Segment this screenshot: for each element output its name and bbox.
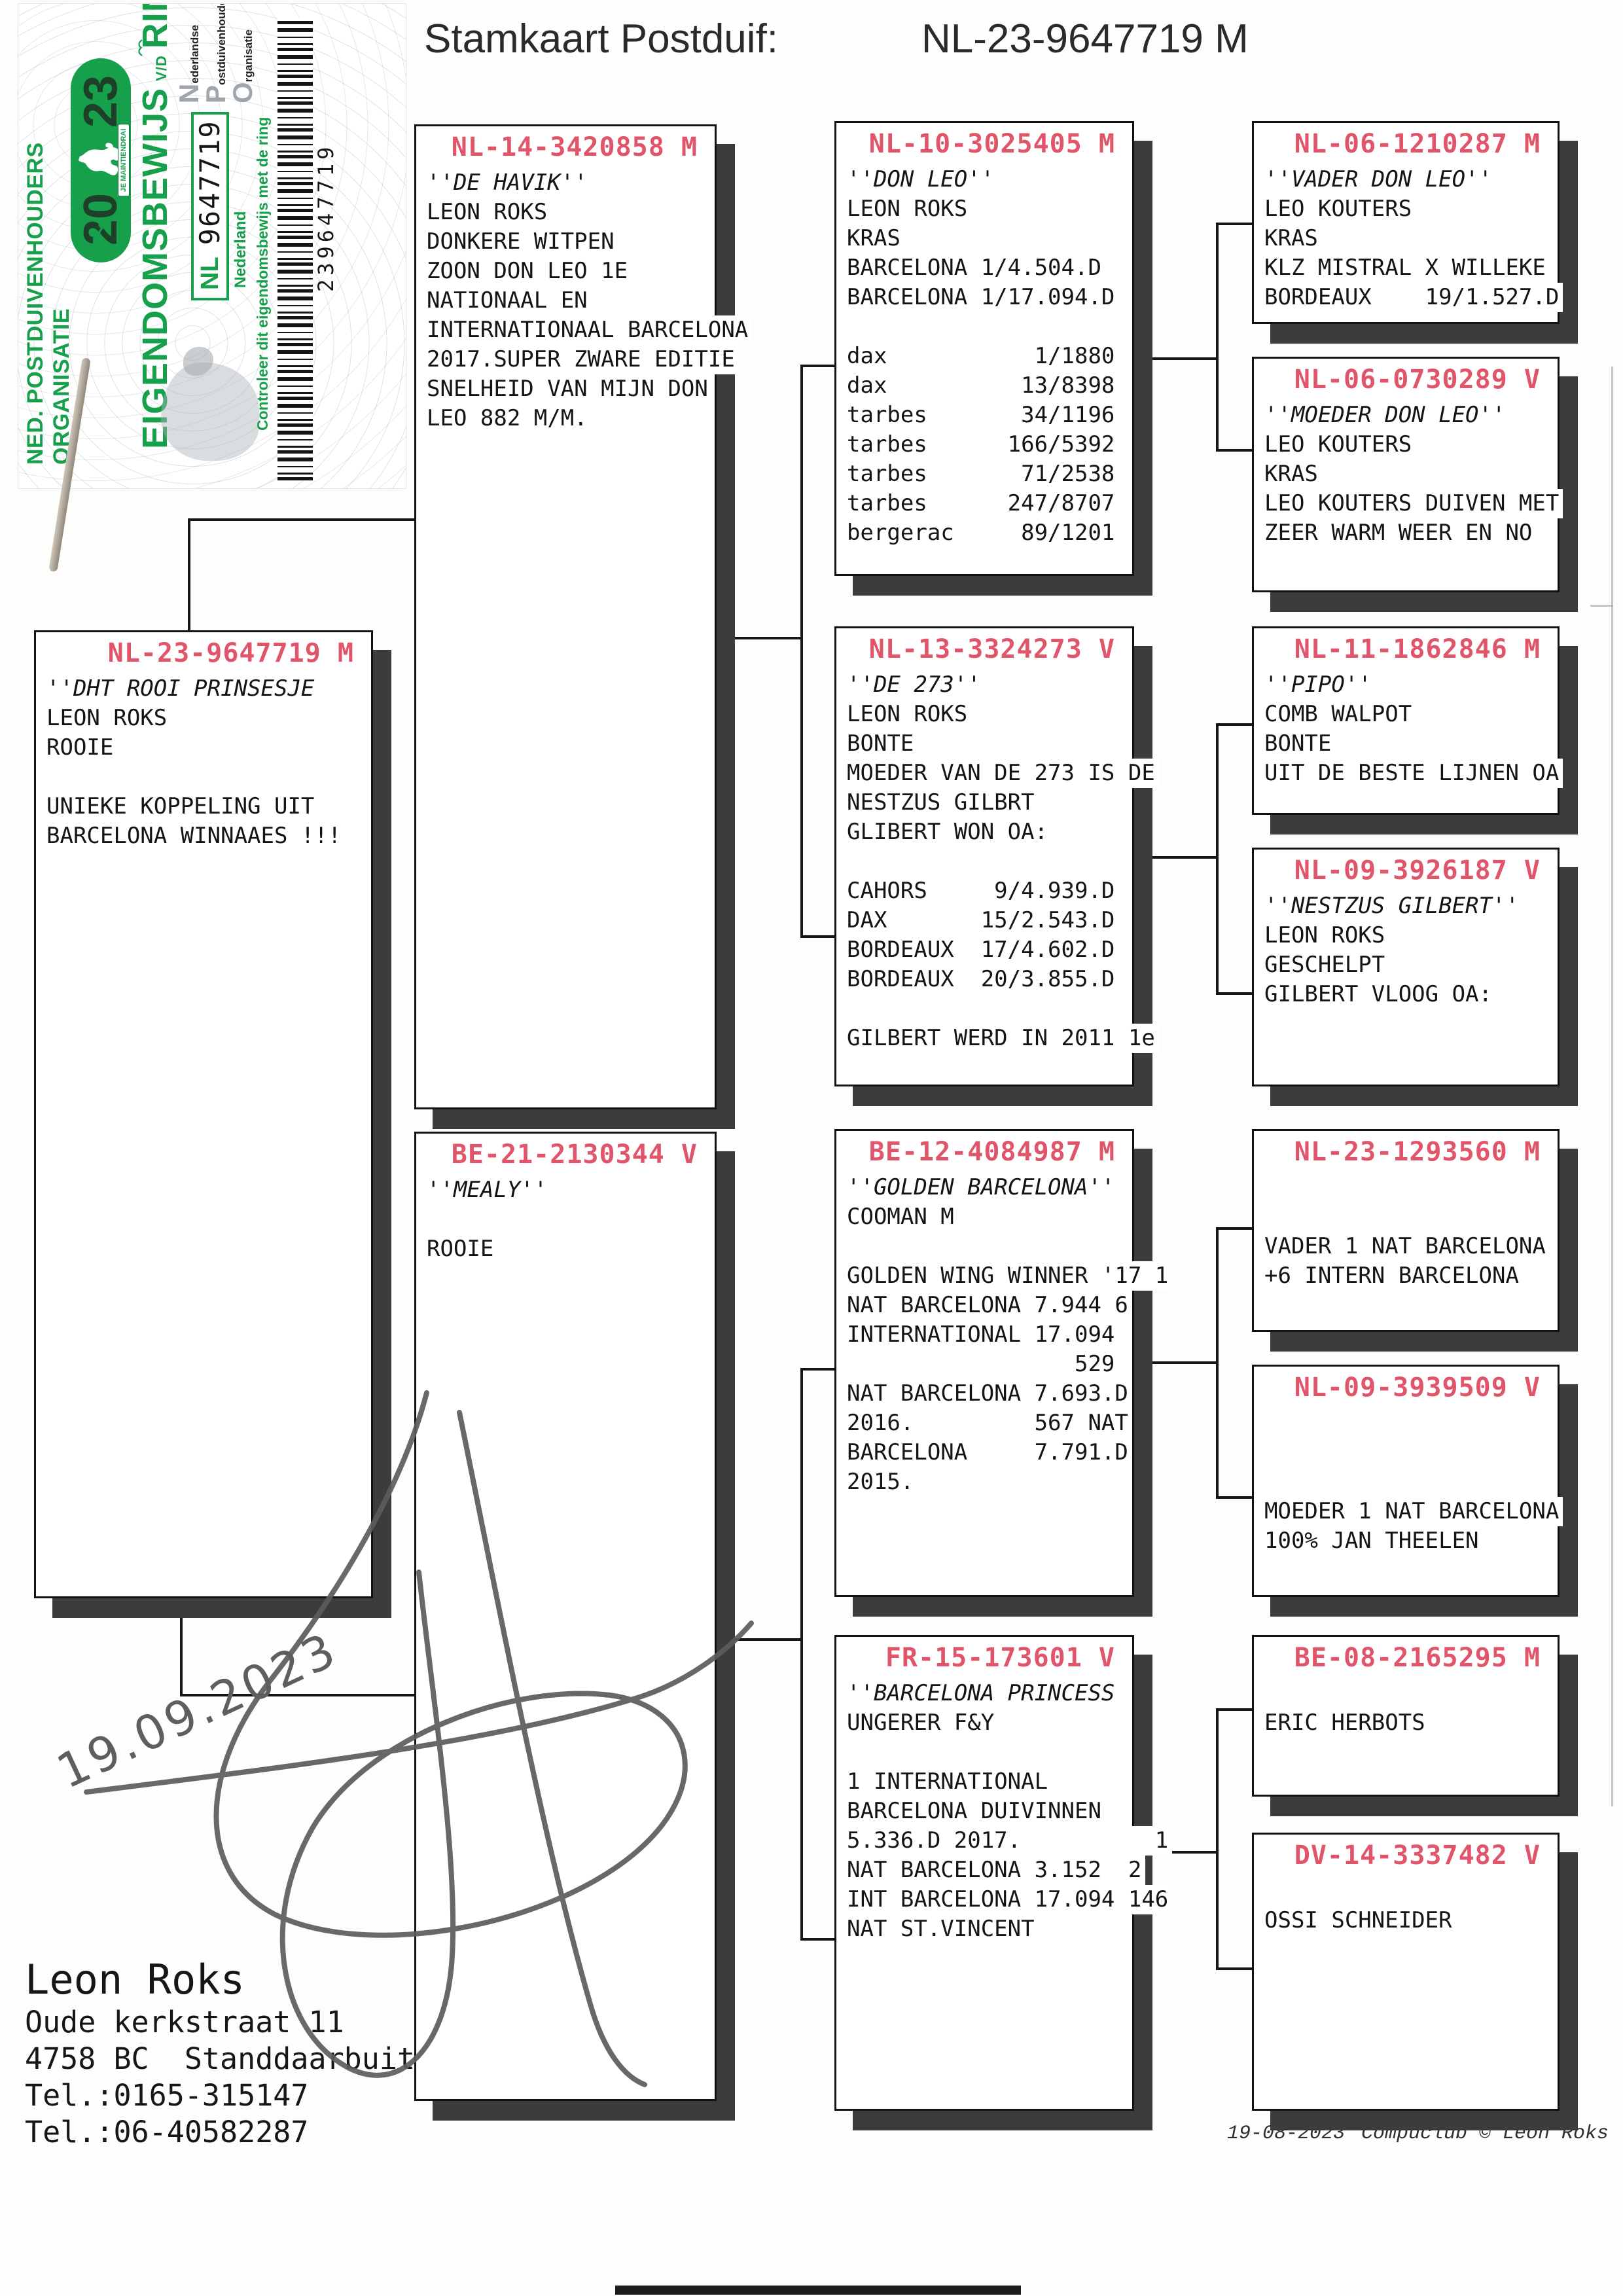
- pedigree-text: ''DE HAVIK''LEON ROKSDONKERE WITPENZOON …: [427, 168, 715, 433]
- ring-number-header: BE-12-4084987 M: [836, 1131, 1132, 1169]
- pedigree-box-be-12-4084987: BE-12-4084987 M ''GOLDEN BARCELONA''COOM…: [834, 1129, 1134, 1597]
- pedigree-text: ''NESTZUS GILBERT''LEON ROKSGESCHELPTGIL…: [1264, 891, 1558, 1009]
- ownership-title: EIGENDOMSBEWIJSV/DRING: [137, 4, 173, 449]
- ring-number-header: NL-09-3926187 V: [1254, 850, 1558, 888]
- sticker-org-line: NED. POSTDUIVENHOUDERS ORGANISATIE: [22, 4, 75, 465]
- connector-line: [800, 1368, 834, 1371]
- stamkaart-page: Stamkaart Postduif: NL-23-9647719 M NED.…: [0, 0, 1623, 2296]
- bird-icon: [136, 39, 144, 56]
- pedigree-text: MOEDER 1 NAT BARCELONA100% JAN THEELEN: [1264, 1408, 1558, 1556]
- owner-block: Leon Roks Oude kerkstraat 11 4758 BC Sta…: [25, 1956, 450, 2151]
- ring-number-header: NL-11-1862846 M: [1254, 628, 1558, 666]
- sticker-ring-number: 9647719: [196, 120, 224, 245]
- pedigree-box-nl-06-1210287: NL-06-1210287 M ''VADER DON LEO''LEO KOU…: [1252, 121, 1560, 324]
- pedigree-text: ''BARCELONA PRINCESSUNGERER F&Y 1 INTERN…: [847, 1679, 1132, 1944]
- ring-number-header: BE-08-2165295 M: [1254, 1637, 1558, 1675]
- owner-phone-1: Tel.:0165-315147: [25, 2077, 450, 2114]
- pedigree-box-nl-10-3025405: NL-10-3025405 M ''DON LEO''LEON ROKSKRAS…: [834, 121, 1134, 576]
- connector-line: [800, 365, 803, 938]
- connector-line: [180, 1598, 183, 1696]
- pedigree-text: VADER 1 NAT BARCELONA+6 INTERN BARCELONA: [1264, 1173, 1558, 1291]
- npo-initial: O: [229, 82, 256, 103]
- pedigree-text: ''MOEDER DON LEO''LEO KOUTERSKRASLEO KOU…: [1264, 401, 1558, 548]
- pedigree-text: ''MEALY'' ROOIE: [427, 1175, 715, 1264]
- connector-line: [1216, 723, 1219, 995]
- motto-banner: JE MAINTIENDRAI: [118, 124, 130, 197]
- npo-initial: P: [202, 85, 229, 103]
- ring-number-header: BE-21-2130344 V: [416, 1134, 715, 1172]
- connector-line: [1216, 1708, 1219, 1970]
- pedigree-box-nl-14-3420858: NL-14-3420858 M ''DE HAVIK''LEON ROKSDON…: [414, 124, 717, 1109]
- ring-number-header: NL-10-3025405 M: [836, 123, 1132, 161]
- pedigree-box-nl-09-3926187: NL-09-3926187 V ''NESTZUS GILBERT''LEON …: [1252, 848, 1560, 1086]
- connector-line: [1216, 1227, 1252, 1230]
- europe-map-silhouette: [161, 363, 259, 461]
- connector-line: [1134, 856, 1216, 859]
- ring-number-header: NL-23-1293560 M: [1254, 1131, 1558, 1169]
- owner-name: Leon Roks: [25, 1956, 450, 2004]
- owner-city: 4758 BC Standdaarbuiten: [25, 2041, 450, 2077]
- handwritten-date: 19.09.2023: [50, 1623, 346, 1797]
- pedigree-text: ''GOLDEN BARCELONA''COOMAN M GOLDEN WING…: [847, 1173, 1132, 1497]
- owner-street: Oude kerkstraat 11: [25, 2004, 450, 2041]
- country-label: Nederland: [233, 211, 249, 288]
- pedigree-box-nl-11-1862846: NL-11-1862846 M ''PIPO''COMB WALPOTBONTE…: [1252, 626, 1560, 815]
- connector-line: [1134, 1361, 1216, 1364]
- connector-line: [1216, 449, 1252, 452]
- pedigree-box-nl-23-9647719: NL-23-9647719 M ''DHT ROOI PRINSESJELEON…: [34, 630, 373, 1598]
- pedigree-text: ''PIPO''COMB WALPOTBONTEUIT DE BESTE LIJ…: [1264, 670, 1558, 788]
- npo-initial: N: [175, 84, 202, 103]
- connector-line: [1216, 1496, 1252, 1499]
- npo-rest: ederlandse: [189, 25, 200, 84]
- connector-line: [188, 518, 190, 630]
- connector-line: [1216, 1227, 1219, 1499]
- connector-line: [1134, 357, 1216, 360]
- footer-date: 19-08-2023: [1227, 2122, 1345, 2145]
- connector-line: [800, 365, 834, 367]
- connector-line: [1216, 223, 1252, 225]
- check-instruction: Controleer dit eigendomsbewijs met de ri…: [254, 117, 271, 431]
- connector-line: [717, 1638, 800, 1641]
- pedigree-text: OSSI SCHNEIDER: [1264, 1876, 1558, 1935]
- bird-icon: [96, 217, 106, 240]
- pedigree-text: ''DON LEO''LEON ROKSKRASBARCELONA 1/4.50…: [847, 165, 1132, 548]
- npo-wordmark: Nederlandse Postduivenhouders Organisati…: [175, 4, 256, 103]
- ring-number-box: NL 9647719: [191, 112, 229, 300]
- connector-line: [800, 935, 834, 938]
- connector-line: [1216, 723, 1252, 726]
- owner-phone-2: Tel.:06-40582287: [25, 2114, 450, 2151]
- connector-line: [1216, 1967, 1252, 1970]
- footer-credit: Compuclub © Leon Roks: [1361, 2122, 1609, 2145]
- pedigree-text: ERIC HERBOTS: [1264, 1679, 1558, 1738]
- pedigree-box-nl-09-3939509: NL-09-3939509 V MOEDER 1 NAT BARCELONA10…: [1252, 1365, 1560, 1597]
- npo-rest: rganisatie: [243, 29, 254, 82]
- connector-line: [1216, 992, 1252, 995]
- connector-line: [800, 1368, 803, 1941]
- ring-country-code: NL: [198, 245, 223, 298]
- pedigree-box-be-08-2165295: BE-08-2165295 M ERIC HERBOTS: [1252, 1635, 1560, 1797]
- ring-number-header: DV-14-3337482 V: [1254, 1835, 1558, 1873]
- npo-rest: ostduivenhouders: [216, 4, 227, 85]
- ring-number-header: NL-06-0730289 V: [1254, 359, 1558, 397]
- scan-bottom-artifact: [615, 2286, 1021, 2295]
- pedigree-box-nl-23-1293560: NL-23-1293560 M VADER 1 NAT BARCELONA+6 …: [1252, 1129, 1560, 1332]
- pedigree-box-be-21-2130344: BE-21-2130344 V ''MEALY'' ROOIE: [414, 1132, 717, 2101]
- connector-line: [717, 637, 800, 639]
- connector-line: [800, 1938, 834, 1941]
- vd-abbrev: V/D: [154, 55, 173, 81]
- pedigree-text: ''VADER DON LEO''LEO KOUTERSKRASKLZ MIST…: [1264, 165, 1558, 312]
- page-title: Stamkaart Postduif:: [424, 16, 778, 62]
- ring-number-header: FR-15-173601 V: [836, 1637, 1132, 1675]
- ring-number-header: NL-09-3939509 V: [1254, 1367, 1558, 1405]
- connector-line: [1216, 223, 1219, 452]
- barcode: [277, 18, 313, 480]
- scan-edge-line: [1611, 367, 1613, 1806]
- pedigree-box-dv-14-3337482: DV-14-3337482 V OSSI SCHNEIDER: [1252, 1833, 1560, 2111]
- ring-number-header: NL-23-9647719 M: [36, 632, 371, 670]
- connector-line: [188, 518, 414, 521]
- pedigree-box-nl-13-3324273: NL-13-3324273 V ''DE 273''LEON ROKSBONTE…: [834, 626, 1134, 1086]
- scan-edge-tick: [1590, 605, 1613, 607]
- pedigree-box-fr-15-173601: FR-15-173601 V ''BARCELONA PRINCESSUNGER…: [834, 1635, 1134, 2111]
- ring-number-header: NL-06-1210287 M: [1254, 123, 1558, 161]
- year-right: 23: [77, 75, 124, 128]
- ring-number-header: NL-14-3420858 M: [416, 126, 715, 164]
- pedigree-box-nl-06-0730289: NL-06-0730289 V ''MOEDER DON LEO''LEO KO…: [1252, 357, 1560, 592]
- pedigree-text: ''DHT ROOI PRINSESJELEON ROKSROOIE UNIEK…: [46, 674, 371, 851]
- pedigree-text: ''DE 273''LEON ROKSBONTEMOEDER VAN DE 27…: [847, 670, 1132, 1053]
- title-ring-number: NL-23-9647719 M: [921, 16, 1249, 62]
- connector-line: [1216, 1708, 1252, 1711]
- ring-number-header: NL-13-3324273 V: [836, 628, 1132, 666]
- barcode-number: 239647719: [315, 143, 336, 292]
